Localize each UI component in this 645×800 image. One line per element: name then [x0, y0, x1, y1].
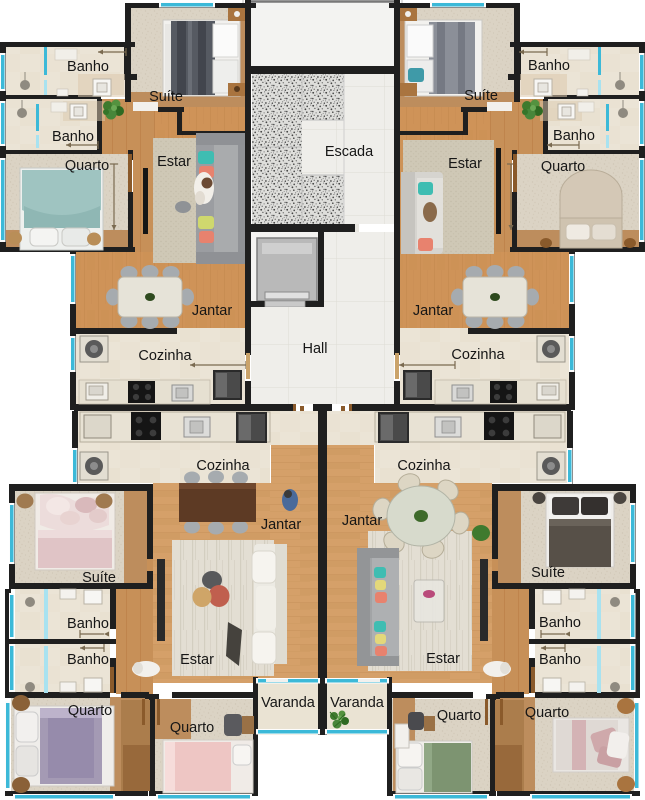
svg-text:Quarto: Quarto [170, 720, 214, 736]
svg-text:Banho: Banho [528, 58, 570, 74]
svg-text:Suíte: Suíte [531, 565, 565, 581]
svg-text:Estar: Estar [157, 154, 191, 170]
svg-text:Banho: Banho [67, 652, 109, 668]
svg-text:Banho: Banho [539, 652, 581, 668]
svg-text:Banho: Banho [52, 129, 94, 145]
svg-text:Escada: Escada [325, 144, 374, 160]
svg-text:Quarto: Quarto [541, 159, 585, 175]
svg-text:Quarto: Quarto [65, 158, 109, 174]
svg-text:Banho: Banho [553, 128, 595, 144]
svg-text:Jantar: Jantar [192, 303, 232, 319]
svg-text:Estar: Estar [448, 156, 482, 172]
svg-text:Quarto: Quarto [68, 703, 112, 719]
svg-text:Banho: Banho [67, 616, 109, 632]
svg-text:Banho: Banho [67, 59, 109, 75]
svg-text:Jantar: Jantar [342, 513, 382, 529]
svg-text:Cozinha: Cozinha [138, 348, 192, 364]
svg-text:Varanda: Varanda [261, 695, 316, 711]
svg-text:Cozinha: Cozinha [451, 347, 505, 363]
svg-text:Suíte: Suíte [464, 88, 498, 104]
svg-text:Varanda: Varanda [330, 695, 385, 711]
svg-text:Suíte: Suíte [82, 570, 116, 586]
svg-text:Banho: Banho [539, 615, 581, 631]
svg-text:Estar: Estar [180, 652, 214, 668]
svg-text:Jantar: Jantar [261, 517, 301, 533]
svg-text:Cozinha: Cozinha [196, 458, 250, 474]
svg-text:Suíte: Suíte [149, 89, 183, 105]
svg-text:Jantar: Jantar [413, 303, 453, 319]
svg-text:Estar: Estar [426, 651, 460, 667]
svg-text:Quarto: Quarto [437, 708, 481, 724]
svg-text:Hall: Hall [303, 341, 328, 357]
svg-text:Quarto: Quarto [525, 705, 569, 721]
svg-text:Cozinha: Cozinha [397, 458, 451, 474]
